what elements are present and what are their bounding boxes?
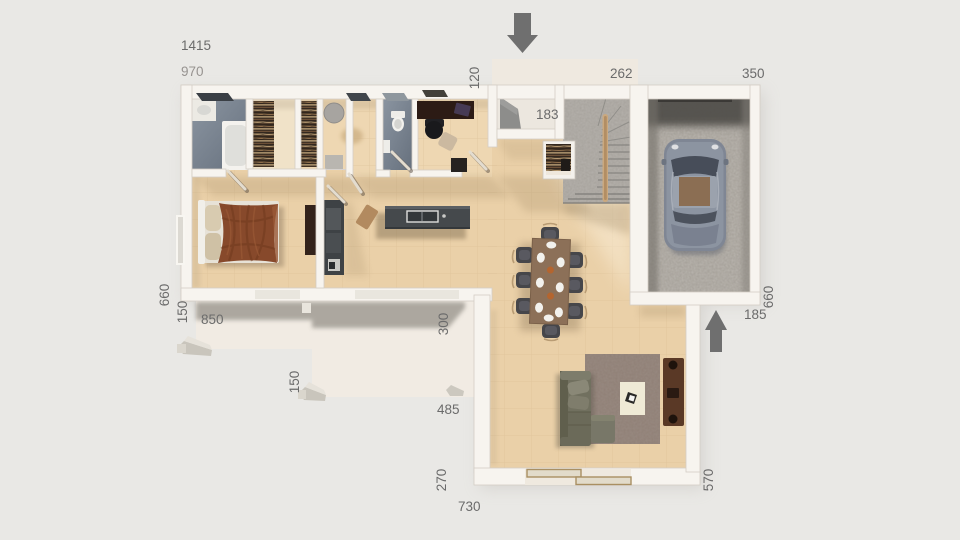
svg-text:970: 970: [181, 64, 204, 79]
svg-text:660: 660: [761, 286, 776, 309]
svg-text:1415: 1415: [181, 38, 211, 53]
svg-text:150: 150: [287, 371, 302, 394]
svg-text:183: 183: [536, 107, 559, 122]
svg-text:120: 120: [467, 67, 482, 90]
svg-text:730: 730: [458, 499, 481, 514]
svg-text:850: 850: [201, 312, 224, 327]
svg-text:262: 262: [610, 66, 633, 81]
svg-text:660: 660: [157, 284, 172, 307]
svg-text:570: 570: [701, 469, 716, 492]
svg-text:300: 300: [436, 313, 451, 336]
svg-text:350: 350: [742, 66, 765, 81]
svg-text:150: 150: [175, 301, 190, 324]
svg-text:270: 270: [434, 469, 449, 492]
svg-text:485: 485: [437, 402, 460, 417]
